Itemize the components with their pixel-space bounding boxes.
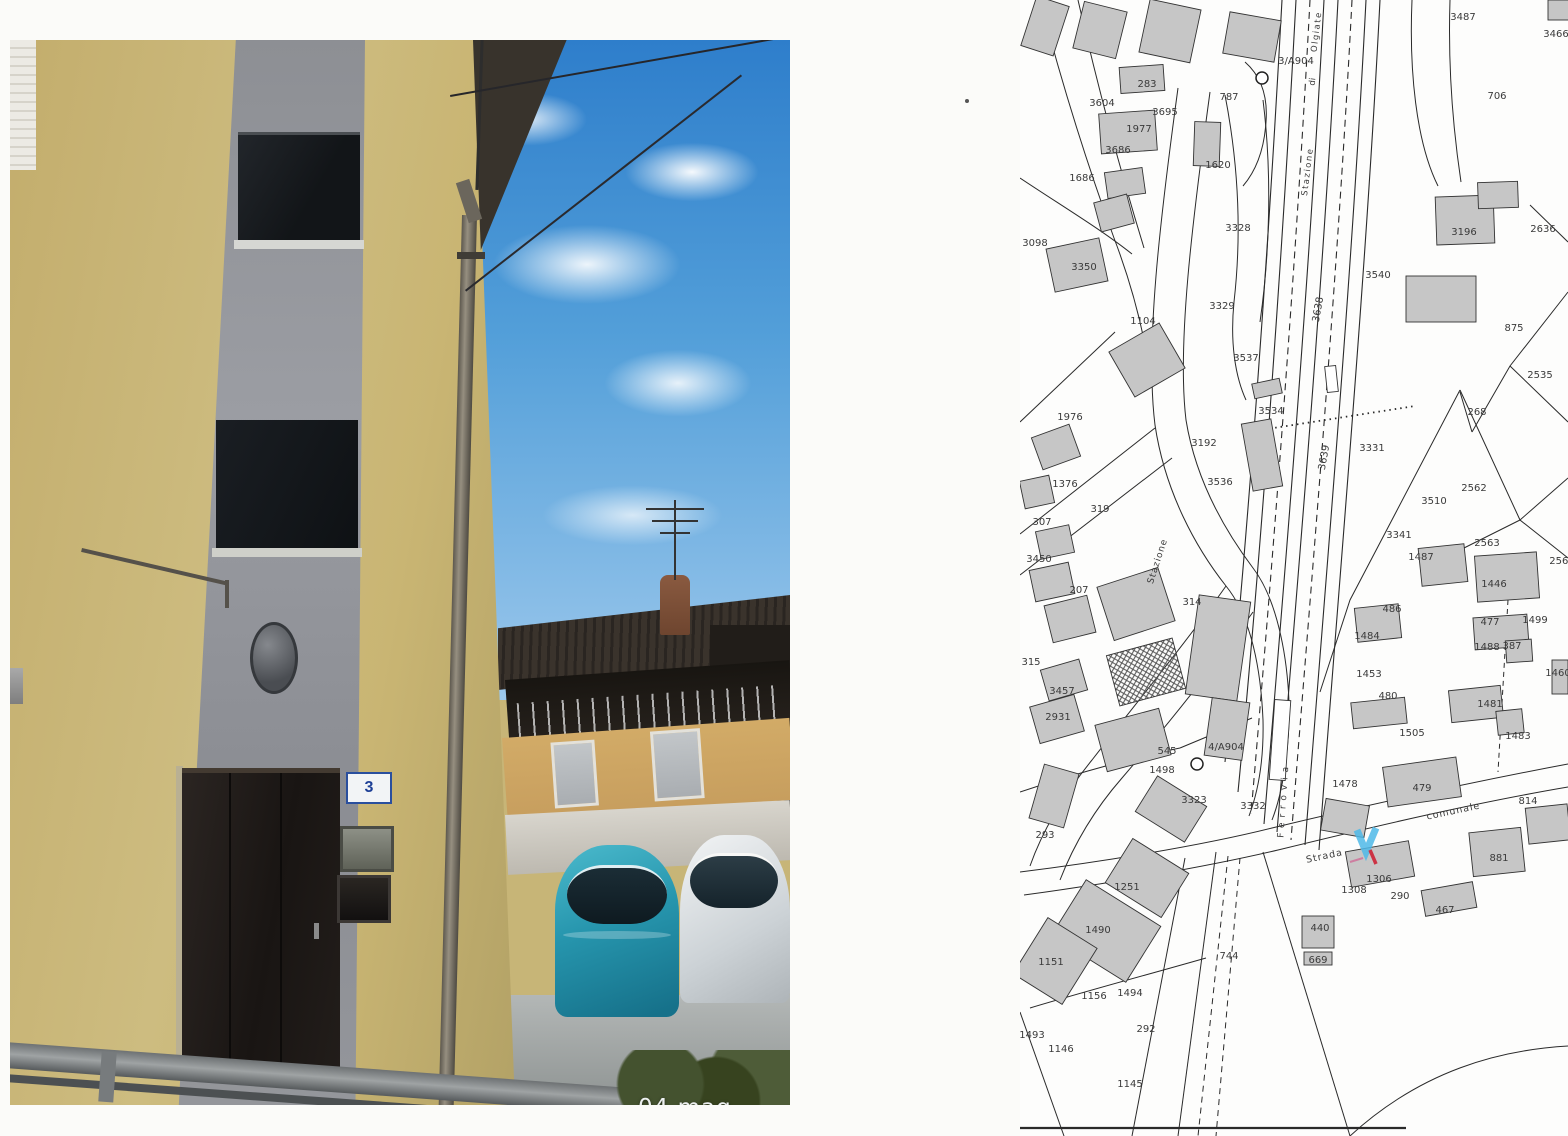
building-footprint (1406, 276, 1476, 322)
parcel-number-label: 3457 (1049, 686, 1074, 697)
tv-antenna-bar (652, 520, 698, 522)
parcel-number-label: 2561 (1549, 556, 1568, 567)
parcel-number-label: 4/A904 (1208, 742, 1244, 753)
parcel-number-label: 3695 (1152, 107, 1177, 118)
parcel-number-label: 3487 (1450, 12, 1475, 23)
parcel-number-label: 814 (1518, 796, 1537, 807)
building-footprint (1020, 475, 1055, 509)
parcel-number-label: 307 (1032, 517, 1051, 528)
parcel-number-label: 545 (1157, 746, 1176, 757)
building-footprint (1474, 552, 1539, 602)
building-footprint (1548, 0, 1568, 20)
parcel-number-label: 1251 (1114, 882, 1139, 893)
parcel-number-label: 315 (1021, 657, 1040, 668)
window-middle (216, 420, 358, 548)
parcel-number-label: 314 (1182, 597, 1201, 608)
wall-vent (10, 668, 23, 704)
parcel-number-label: 207 (1069, 585, 1088, 596)
parcel-number-label: 1484 (1354, 631, 1379, 642)
parcel-number-label: 2535 (1527, 370, 1552, 381)
parcel-number-label: 1460 (1545, 668, 1568, 679)
parcel-number-label: 1146 (1048, 1044, 1073, 1055)
parcel-number-label: 283 (1137, 79, 1156, 90)
building-footprint (1223, 12, 1282, 62)
parcel-number-label: 477 (1480, 617, 1499, 628)
parcel-number-label: 3536 (1207, 477, 1232, 488)
tv-antenna-bar (646, 508, 704, 510)
building-footprint (1104, 167, 1145, 198)
window-sill (212, 548, 362, 557)
parcel-number-label: 1487 (1408, 552, 1433, 563)
parcel-number-label: 319 (1090, 504, 1109, 515)
parcel-number-label: 292 (1136, 1024, 1155, 1035)
roller-shutter (10, 40, 36, 170)
shuttered-window (650, 728, 705, 801)
parcel-number-label: 467 (1435, 905, 1454, 916)
parcel-number-label: 3534 (1258, 406, 1283, 417)
parcel-number-label: 669 (1308, 955, 1327, 966)
parcel-number-label: 3332 (1240, 801, 1265, 812)
wall-pipe-vertical (225, 580, 229, 608)
parcel-number-label: 2931 (1045, 712, 1070, 723)
building-footprint (1418, 544, 1468, 587)
door-handle (314, 923, 319, 939)
parcel-number-label: 3329 (1209, 301, 1234, 312)
entrance-door (182, 768, 340, 1078)
parcel-number-label: 3537 (1233, 353, 1258, 364)
parcel-number-label: 1493 (1020, 1030, 1045, 1041)
parcel-number-label: 881 (1489, 853, 1508, 864)
parcel-number-label: 3510 (1421, 496, 1446, 507)
car-highlight (563, 931, 671, 939)
parcel-number-label: 1306 (1366, 874, 1391, 885)
parcel-number-label: 1505 (1399, 728, 1424, 739)
letterbox (337, 875, 391, 923)
parcel-number-label: 1481 (1477, 699, 1502, 710)
parcel-number-label: 1488 (1474, 642, 1499, 653)
parcel-number-label: 1446 (1481, 579, 1506, 590)
tv-antenna-mast (674, 500, 676, 580)
car-windshield (567, 865, 667, 924)
parcel-number-label: 486 (1382, 604, 1401, 615)
parcel-number-label: 3323 (1181, 795, 1206, 806)
parcel-number-label: 1686 (1069, 173, 1094, 184)
window-sill (234, 240, 364, 249)
parcel-number-label: 2562 (1461, 483, 1486, 494)
parcel-number-label: 3196 (1451, 227, 1476, 238)
door-panel-line (280, 773, 282, 1078)
parcel-number-label: 440 (1310, 923, 1329, 934)
parcel-number-label: 2636 (1530, 224, 1555, 235)
parcel-number-label: 3604 (1089, 98, 1114, 109)
parcel-number-label: 1376 (1052, 479, 1077, 490)
parcel-number-label: 1976 (1057, 412, 1082, 423)
parcel-number-label: 1156 (1081, 991, 1106, 1002)
parcel-number-label: 787 (1219, 92, 1238, 103)
cadastral-map: 348734663/A90478728336043695197736861686… (1020, 0, 1568, 1136)
intercom-box (340, 826, 394, 872)
parcel-number-label: 3686 (1105, 145, 1130, 156)
parcel-number-label: 1498 (1149, 765, 1174, 776)
parcel-number-label: 3331 (1359, 443, 1384, 454)
white-car (680, 835, 790, 1003)
reference-point-circle-4A904 (1191, 758, 1203, 770)
parcel-number-label: 387 (1502, 641, 1521, 652)
parcel-number-label: 1145 (1117, 1079, 1142, 1090)
parcel-number-label: 480 (1378, 691, 1397, 702)
tv-antenna-bar (660, 532, 690, 534)
parcel-number-label: 744 (1219, 951, 1238, 962)
reference-point-circle-3A904 (1256, 72, 1268, 84)
window-upper (238, 132, 360, 243)
parcel-number-label: 1151 (1038, 957, 1063, 968)
parcel-number-label: 1620 (1205, 160, 1230, 171)
parcel-number-label: 3540 (1365, 270, 1390, 281)
building-footprint (1325, 365, 1339, 392)
parcel-number-label: 1483 (1505, 731, 1530, 742)
parcel-number-label: 3192 (1191, 438, 1216, 449)
civic-number-plate: 3 (346, 772, 392, 804)
parcel-number-label: 293 (1035, 830, 1054, 841)
building-footprint (1139, 0, 1201, 63)
scanned-document-page: 3 04 mag 2021 (0, 0, 1568, 1136)
parcel-number-label: 3328 (1225, 223, 1250, 234)
parcel-number-label: 1499 (1522, 615, 1547, 626)
date-stamp: 04 mag 2021 (638, 1095, 790, 1105)
building-footprint (1525, 804, 1568, 844)
parcel-number-label: 3098 (1022, 238, 1047, 249)
door-panel-line (229, 773, 231, 1078)
building-footprint (1469, 827, 1525, 876)
wall-lamp (250, 622, 298, 694)
parcel-number-label: 1977 (1126, 124, 1151, 135)
parcel-number-label: 1453 (1356, 669, 1381, 680)
parcel-number-label: 1104 (1130, 316, 1155, 327)
parcel-number-label: 875 (1504, 323, 1523, 334)
parcel-number-label: 2563 (1474, 538, 1499, 549)
car-windshield (690, 853, 778, 908)
parcel-number-label: 1494 (1117, 988, 1142, 999)
parcel-number-label: 706 (1487, 91, 1506, 102)
shuttered-window (550, 740, 598, 809)
parcel-number-label: 268 (1467, 407, 1486, 418)
parcel-number-label: 479 (1412, 783, 1431, 794)
parcel-number-label: 1490 (1085, 925, 1110, 936)
parcel-number-label: 1308 (1341, 885, 1366, 896)
parcel-number-label: 1478 (1332, 779, 1357, 790)
parcel-number-label: 3350 (1071, 262, 1096, 273)
parcel-number-label: 3466 (1543, 29, 1568, 40)
teal-car (555, 845, 679, 1017)
property-photo: 3 04 mag 2021 (10, 40, 790, 1105)
parcel-number-label: 290 (1390, 891, 1409, 902)
parcel-number-label: 3/A904 (1278, 56, 1314, 67)
parcel-number-label: 3450 (1026, 554, 1051, 565)
chimney (660, 575, 690, 635)
parcel-number-label: 3341 (1386, 530, 1411, 541)
drainpipe-bracket (457, 252, 485, 259)
road-name-label: di (1308, 77, 1319, 86)
scan-speck (965, 99, 969, 103)
building-footprint (1478, 181, 1519, 208)
